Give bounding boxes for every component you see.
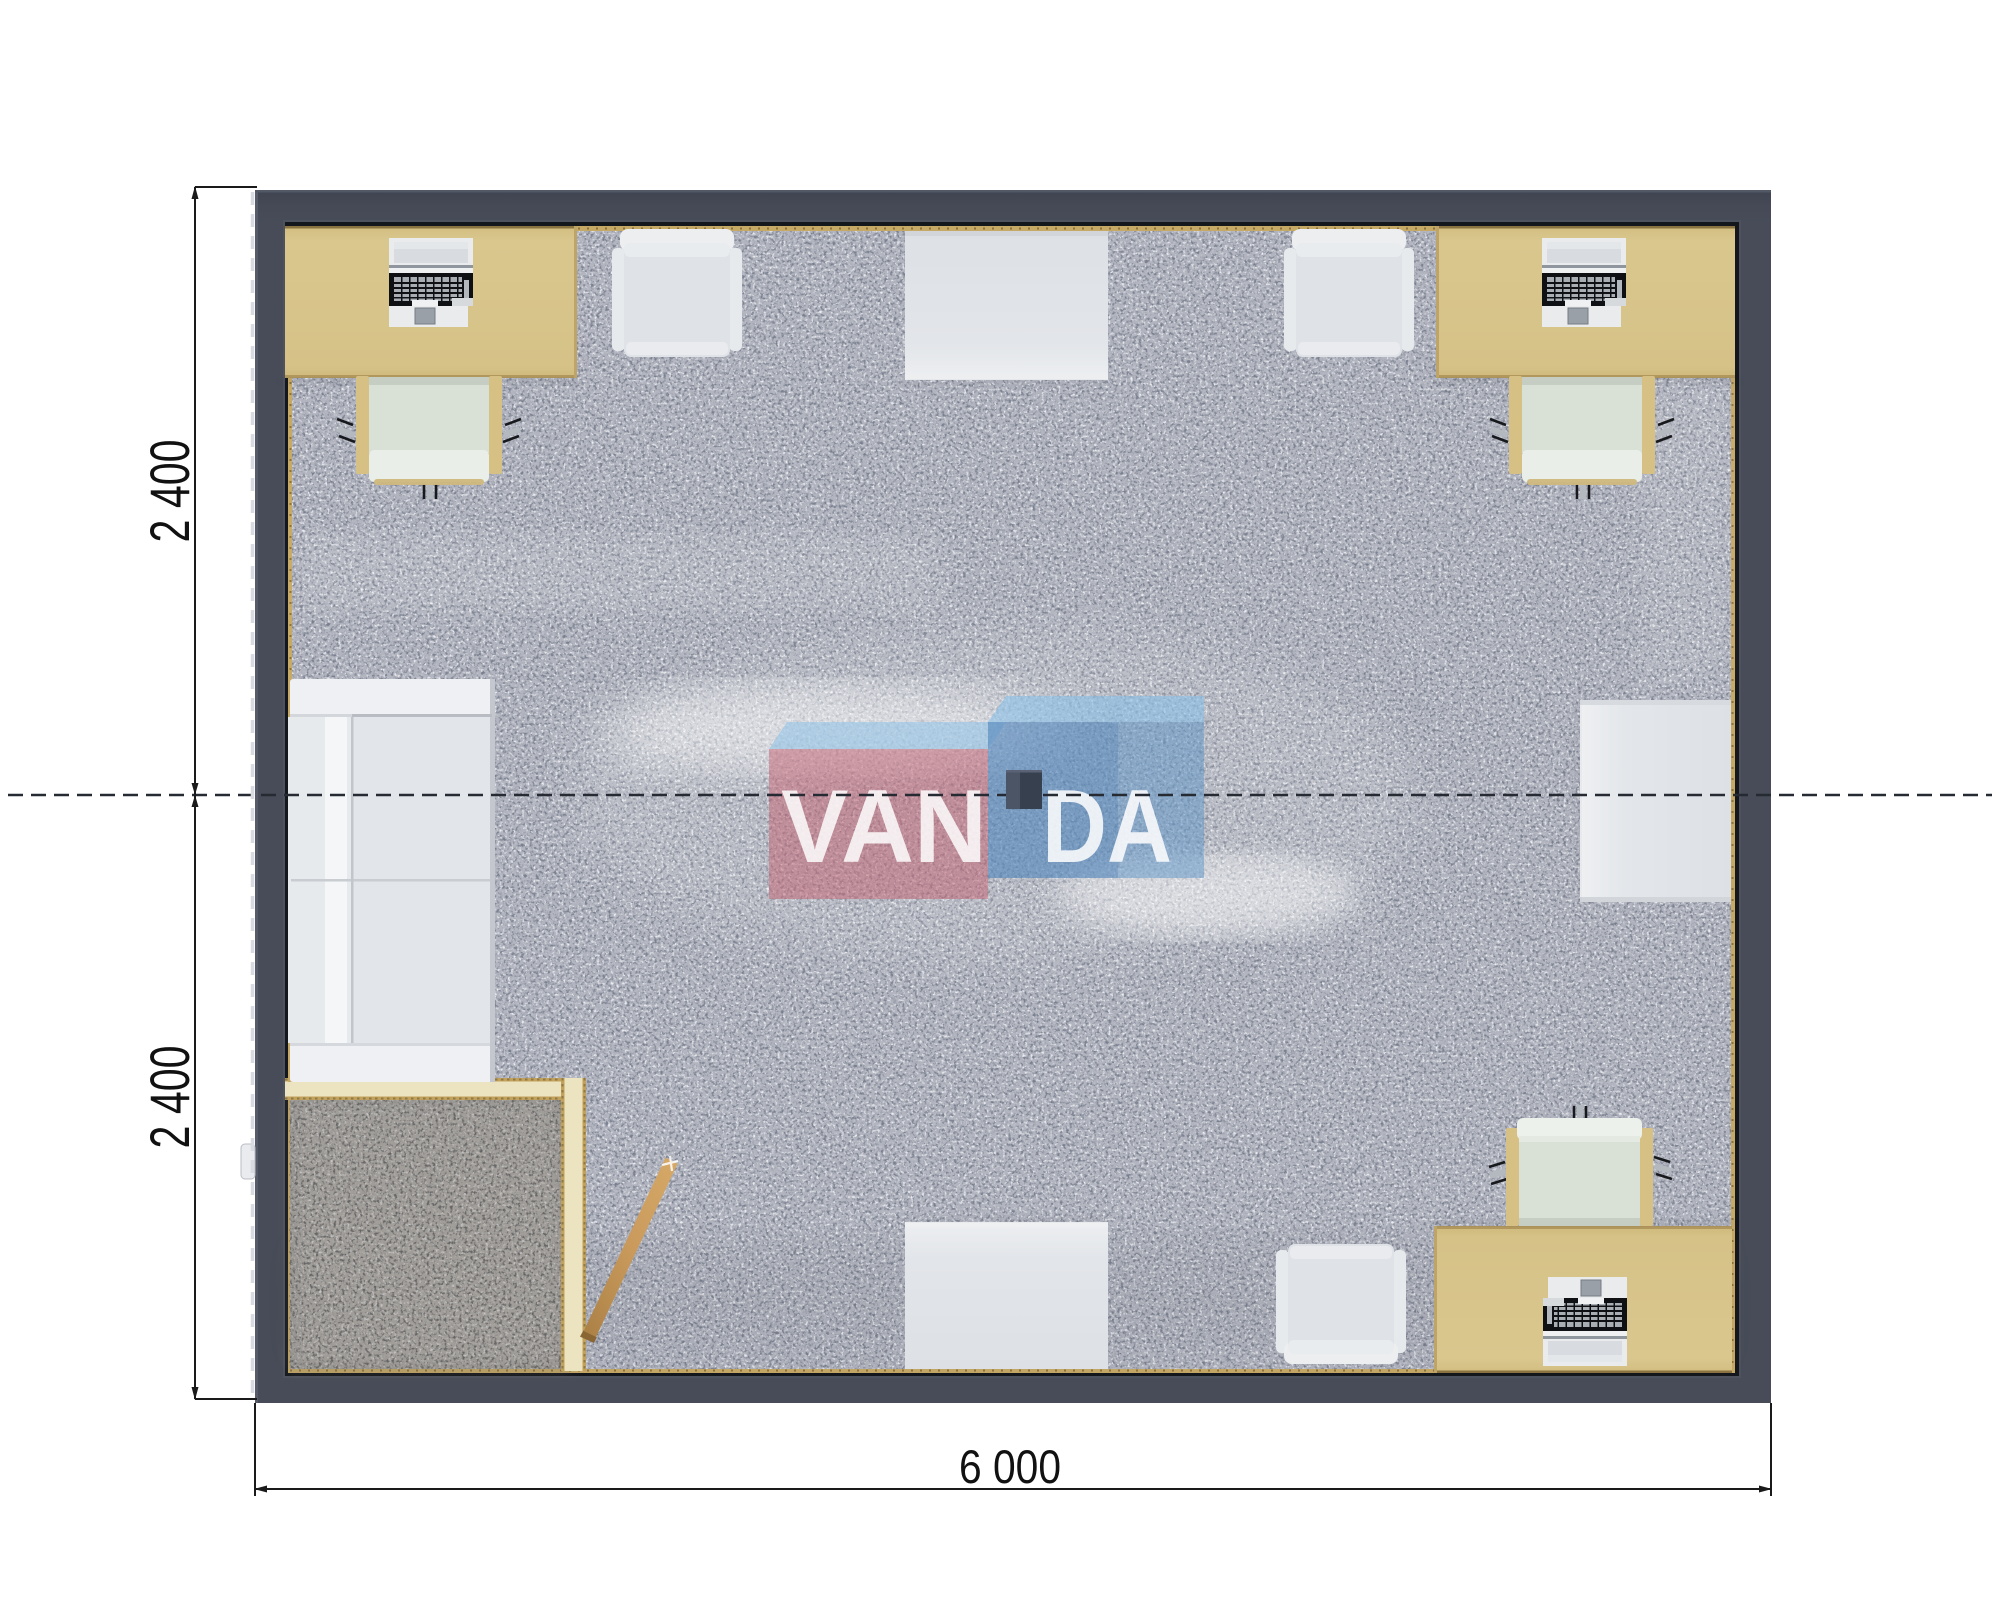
svg-text:2 400: 2 400 [138, 1046, 201, 1149]
svg-text:DA: DA [1042, 769, 1172, 885]
svg-text:VAN: VAN [781, 769, 987, 885]
svg-text:2 400: 2 400 [138, 440, 201, 543]
svg-text:6 000: 6 000 [959, 1440, 1061, 1493]
